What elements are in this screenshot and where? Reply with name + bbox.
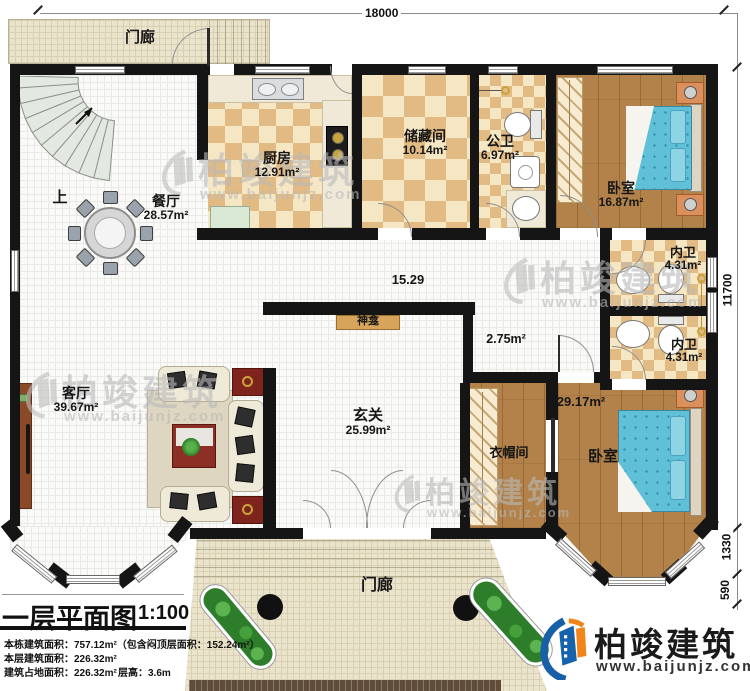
wardrobe xyxy=(557,77,583,203)
label-kitchen-area: 12.91m² xyxy=(255,166,300,179)
ensuite-sink xyxy=(616,320,650,348)
window xyxy=(75,66,125,74)
burner xyxy=(332,132,344,144)
label-dining: 餐厅 xyxy=(152,194,180,209)
dimension-line-right xyxy=(737,13,738,610)
label-cloakroom: 衣帽间 xyxy=(489,446,528,460)
floor-area-line: 本层建筑面积：226.32m² xyxy=(4,650,117,665)
dining-table-inner xyxy=(94,217,126,249)
lamp xyxy=(684,198,697,211)
door-opening xyxy=(612,379,646,390)
label-public-bath: 公卫 xyxy=(486,134,514,149)
total-area-line: 本栋建筑面积：757.12m²（包含闷顶层面积：152.24m²） xyxy=(4,636,260,651)
brand-logo-icon xyxy=(536,616,592,680)
window xyxy=(255,66,310,74)
porch-steps xyxy=(209,20,269,65)
lamp xyxy=(684,86,697,99)
towel-ring xyxy=(697,274,706,283)
window xyxy=(707,257,717,288)
lamp xyxy=(684,389,697,402)
spiral-staircase xyxy=(18,76,118,210)
label-living-area: 39.67m² xyxy=(54,401,99,414)
table-decor xyxy=(242,504,253,515)
toilet-tank xyxy=(658,294,684,303)
bath-sink xyxy=(512,196,540,221)
label-living: 客厅 xyxy=(62,386,90,401)
chair xyxy=(140,226,153,241)
burner xyxy=(332,149,344,161)
label-porch-bottom: 门廊 xyxy=(361,578,393,595)
title-rule-bottom xyxy=(0,626,186,630)
door-opening xyxy=(558,372,594,383)
wall xyxy=(263,368,276,528)
label-storage-area: 10.14m² xyxy=(403,144,448,157)
floor-plan: 18000 11700 1330 590 xyxy=(0,0,750,691)
window xyxy=(408,66,446,74)
wardrobe-rail xyxy=(482,392,483,522)
sink-basin xyxy=(281,83,299,96)
bay-window xyxy=(608,577,666,586)
wall xyxy=(460,383,470,528)
pillow xyxy=(670,416,686,456)
footprint-line: 建筑占地面积：226.32m² xyxy=(4,664,117,679)
label-ensuite-top: 内卫 xyxy=(670,246,696,260)
door-leaf xyxy=(551,418,555,472)
window xyxy=(488,66,518,74)
tv xyxy=(26,424,30,474)
door-opening xyxy=(210,64,234,75)
wall xyxy=(463,315,473,372)
bay-window xyxy=(66,575,120,584)
sink-basin xyxy=(258,83,276,96)
label-storage: 储藏间 xyxy=(404,129,446,144)
label-hallway: 15.29 xyxy=(392,273,425,287)
sofa-cushion xyxy=(169,492,189,510)
chair xyxy=(103,262,118,275)
table-decor xyxy=(242,376,253,387)
label-ensuite-top-area: 4.31m² xyxy=(665,260,701,272)
label-foyer: 玄关 xyxy=(353,408,383,424)
porch-column xyxy=(257,594,283,620)
kitchen-sink xyxy=(252,78,304,100)
sofa-cushion xyxy=(235,435,255,455)
window xyxy=(597,66,673,74)
light-pull xyxy=(501,86,510,95)
wall xyxy=(431,528,546,539)
door-leaf xyxy=(558,335,560,372)
pillow xyxy=(670,110,686,144)
title-rule-top xyxy=(2,594,184,595)
shrine-label: 神龛 xyxy=(357,316,379,328)
towel-ring xyxy=(697,327,706,336)
label-kitchen: 厨房 xyxy=(263,151,291,166)
wardrobe-rail xyxy=(569,80,570,200)
dimension-right-bay: 1330 xyxy=(719,531,733,564)
window xyxy=(707,292,717,333)
sofa-cushion xyxy=(167,371,187,389)
bed-headboard xyxy=(690,408,702,516)
label-bedroom-bottom: 卧室 xyxy=(588,449,618,465)
label-public-bath-area: 6.97m² xyxy=(481,149,519,162)
stove xyxy=(326,126,348,166)
pillow xyxy=(670,460,686,500)
label-bedroom-bottom-area: 29.17m² xyxy=(557,395,605,409)
label-foyer-area: 25.99m² xyxy=(346,424,391,437)
door-opening xyxy=(612,228,646,240)
label-porch-top: 门廊 xyxy=(125,30,155,46)
light-pull-cord xyxy=(479,90,503,91)
porch-steps xyxy=(185,535,547,577)
brand-website: www.baijunjz.com xyxy=(596,658,750,675)
sofa-cushion xyxy=(197,371,218,390)
window xyxy=(11,250,19,292)
brand-logo: 柏竣建筑 www.baijunjz.com xyxy=(536,616,746,682)
dimension-right-main: 11700 xyxy=(720,271,734,310)
towel-bar xyxy=(701,280,702,330)
page-title: 一层平面图 xyxy=(2,597,137,636)
table-plant xyxy=(182,438,200,456)
wall xyxy=(546,64,556,228)
washer-door xyxy=(518,165,533,180)
label-ensuite-bottom-area: 4.31m² xyxy=(666,352,702,364)
wall xyxy=(463,372,558,383)
wall xyxy=(594,372,610,383)
sofa-cushion xyxy=(197,492,218,511)
toilet-tank xyxy=(530,110,542,139)
door-leaf xyxy=(207,28,210,66)
toilet-tank xyxy=(658,316,684,325)
dimension-right-bay2: 590 xyxy=(718,577,732,603)
label-dining-area: 28.57m² xyxy=(144,209,189,222)
label-stairs-up: 上 xyxy=(52,190,67,206)
height-line: 层高：3.6m xyxy=(118,664,171,679)
plan-scale: 1:100 xyxy=(138,602,189,625)
wall xyxy=(10,75,20,526)
pillow xyxy=(670,148,686,182)
label-bedroom-top: 卧室 xyxy=(607,181,635,196)
plant-decor xyxy=(19,394,28,402)
wall xyxy=(610,306,718,316)
wall xyxy=(352,64,362,228)
chair xyxy=(68,226,81,241)
wall xyxy=(470,64,479,228)
sofa-cushion xyxy=(235,463,255,483)
label-bedroom-top-area: 16.87m² xyxy=(599,196,644,209)
porch-edge-band xyxy=(189,680,501,691)
wall xyxy=(600,240,610,379)
wall xyxy=(190,528,303,539)
dimension-top: 18000 xyxy=(362,6,401,20)
door-opening xyxy=(303,528,431,539)
label-ensuite-bottom: 内卫 xyxy=(671,338,697,352)
label-corridor-area: 2.75m² xyxy=(486,333,526,346)
wall xyxy=(263,302,475,315)
wall xyxy=(197,64,208,160)
sofa-cushion xyxy=(234,406,255,427)
